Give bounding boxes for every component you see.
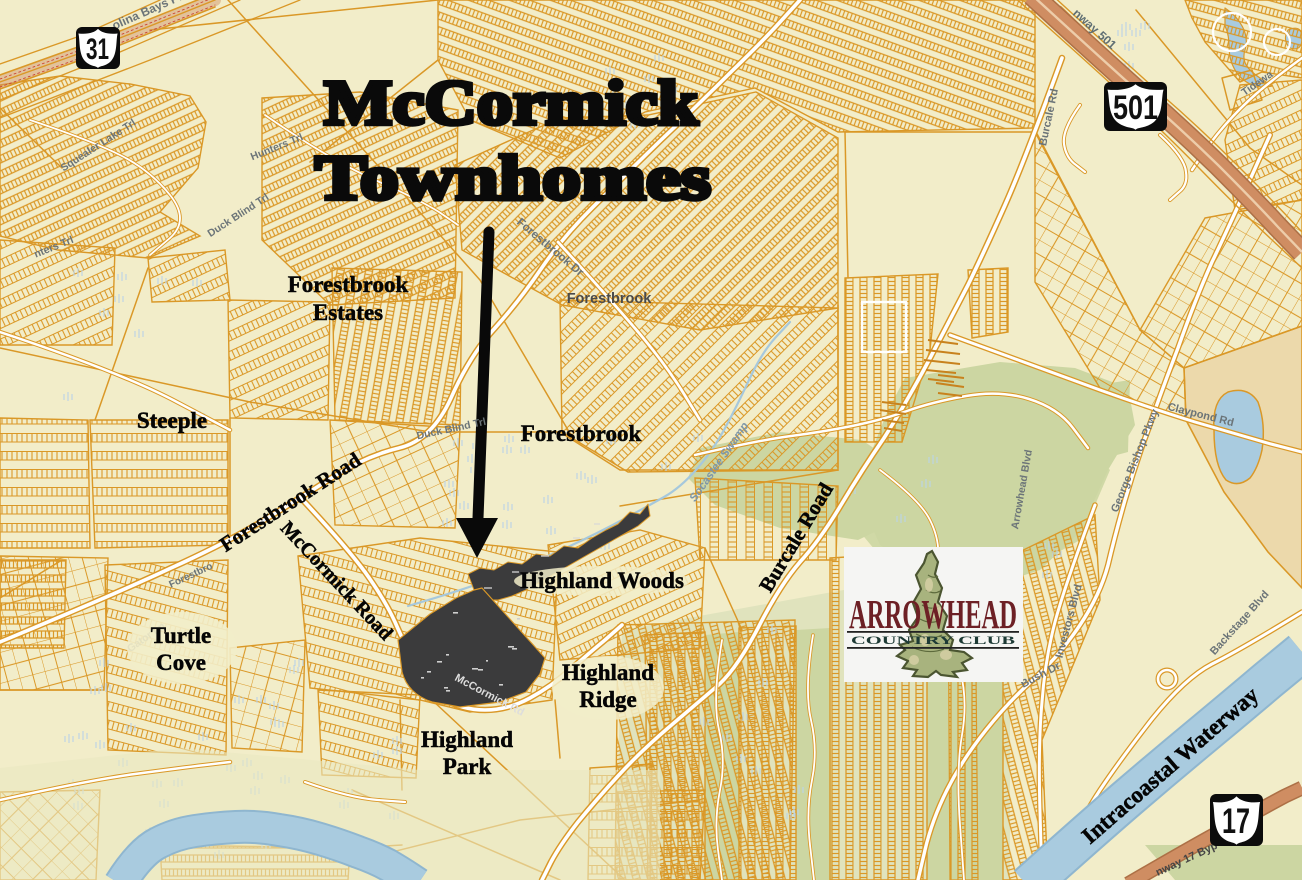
svg-text:Forestbrook: Forestbrook bbox=[288, 272, 409, 297]
svg-text:Estates: Estates bbox=[313, 300, 383, 325]
svg-text:Cove: Cove bbox=[156, 650, 206, 675]
svg-text:Steeple: Steeple bbox=[137, 408, 207, 433]
svg-text:Highland: Highland bbox=[562, 660, 654, 685]
svg-text:31: 31 bbox=[86, 33, 109, 66]
svg-text:Forestbrook: Forestbrook bbox=[567, 291, 653, 307]
svg-text:ARROWHEAD: ARROWHEAD bbox=[849, 591, 1017, 637]
svg-text:Highland Woods: Highland Woods bbox=[520, 568, 684, 593]
svg-text:Turtle: Turtle bbox=[151, 623, 212, 648]
svg-text:Highland: Highland bbox=[421, 727, 513, 752]
svg-text:Forestbrook: Forestbrook bbox=[521, 421, 642, 446]
svg-text:McCormick: McCormick bbox=[324, 67, 698, 138]
svg-text:17: 17 bbox=[1222, 802, 1250, 841]
svg-text:Park: Park bbox=[443, 754, 492, 779]
svg-text:501: 501 bbox=[1113, 89, 1158, 127]
svg-text:COUNTRY CLUB: COUNTRY CLUB bbox=[851, 633, 1015, 647]
svg-text:Ridge: Ridge bbox=[579, 687, 637, 712]
svg-text:Townhomes: Townhomes bbox=[315, 142, 711, 213]
